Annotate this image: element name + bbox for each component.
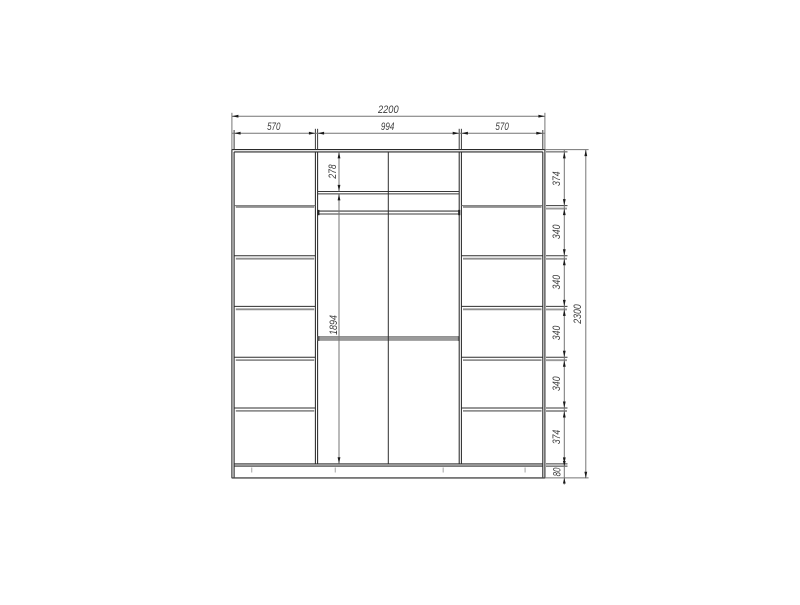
svg-text:570: 570: [267, 121, 281, 133]
svg-text:570: 570: [495, 121, 509, 133]
svg-text:340: 340: [551, 224, 563, 239]
svg-text:374: 374: [551, 430, 563, 445]
svg-text:374: 374: [551, 171, 563, 186]
svg-text:340: 340: [551, 325, 563, 340]
svg-text:994: 994: [381, 121, 394, 133]
svg-text:340: 340: [551, 274, 563, 289]
svg-text:340: 340: [551, 376, 563, 391]
svg-text:278: 278: [327, 164, 339, 179]
svg-text:1894: 1894: [328, 315, 340, 335]
svg-text:80: 80: [552, 467, 564, 476]
svg-text:2200: 2200: [377, 104, 399, 116]
svg-text:2300: 2300: [572, 304, 584, 325]
